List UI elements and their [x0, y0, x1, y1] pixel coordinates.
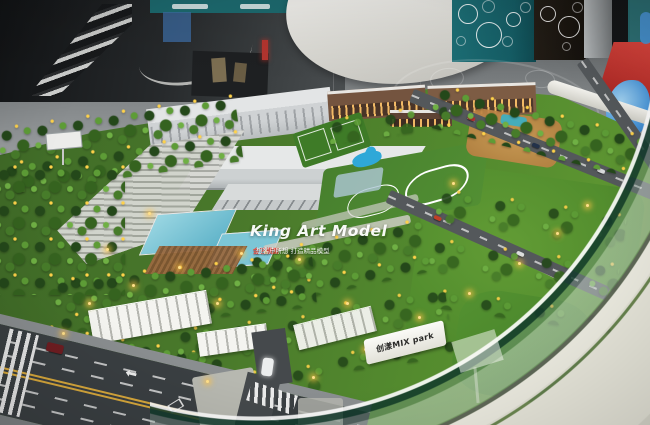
bubble-circle: [502, 36, 513, 47]
wall-pillar: [584, 0, 614, 58]
street-light-glow: [418, 316, 421, 319]
bubble-wall: [452, 0, 536, 62]
exhibition-photo: 创漾MIX park King Art Model 金艺模型 想客户所想 打造精…: [0, 0, 650, 425]
bubble-circle: [520, 2, 531, 13]
bubble-circle: [540, 6, 556, 22]
street-light-glow: [556, 232, 559, 235]
street-light-glow: [468, 292, 471, 295]
highway-sign: [45, 130, 82, 150]
watermark: King Art Model 金艺模型 想客户所想 打造精品模型: [250, 222, 470, 262]
bubble-circle: [558, 16, 580, 38]
bubble-wall-dark: [534, 0, 586, 60]
street-light-glow: [206, 380, 209, 383]
street-light-glow: [132, 284, 135, 287]
street-light-glow: [106, 248, 109, 251]
street-light-glow: [88, 302, 91, 305]
wall-poster: [163, 12, 191, 42]
bubble-circle: [482, 0, 495, 13]
street-light-glow: [586, 204, 589, 207]
street-light-glow: [312, 376, 315, 379]
street-light-glow: [346, 302, 349, 305]
storage-box: [211, 58, 227, 83]
bubble-circle: [506, 12, 521, 27]
street-light-glow: [62, 332, 65, 335]
blue-sculpture: [640, 12, 650, 44]
street-light-glow: [518, 262, 521, 265]
watermark-title: King Art Model: [250, 222, 387, 240]
fire-extinguisher: [262, 40, 268, 60]
pavement-plaza: [298, 398, 343, 425]
watermark-tagline-text: 想客户所想 打造精品模型: [256, 245, 330, 255]
bubble-circle: [562, 42, 571, 51]
signage-logo-right: [240, 4, 270, 9]
street-light-glow: [240, 252, 243, 255]
field-lines: [297, 128, 332, 161]
signage-logo-left: [172, 4, 208, 9]
bubble-circle: [572, 2, 583, 13]
street-light-glow: [148, 212, 151, 215]
bubble-circle: [476, 22, 502, 48]
bubble-circle: [456, 36, 466, 46]
street-light-glow: [452, 182, 455, 185]
sign-pole: [62, 149, 64, 165]
street-light-glow: [178, 266, 181, 269]
bubble-circle: [458, 4, 478, 24]
street-light-glow: [216, 302, 219, 305]
